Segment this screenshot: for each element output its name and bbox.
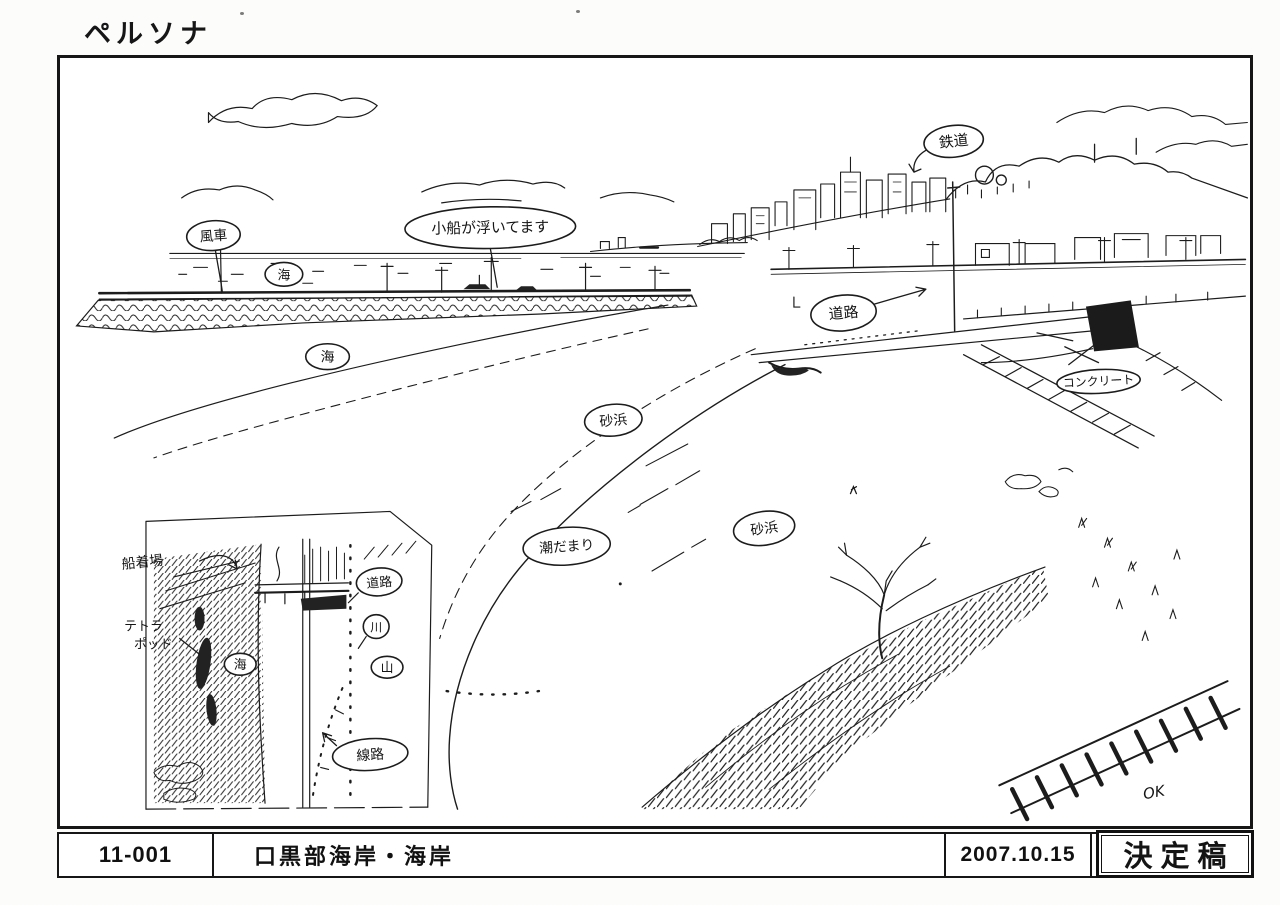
inset-label-road: 道路 — [355, 566, 403, 598]
tracks-arrow — [323, 733, 337, 746]
river-bubble-tail — [358, 636, 366, 648]
clouds-sketch — [182, 93, 674, 202]
cut-number: 11-001 — [59, 834, 214, 876]
date: 2007.10.15 — [946, 834, 1092, 876]
breakwater-sketch — [77, 243, 697, 332]
svg-text:海: 海 — [234, 658, 247, 673]
svg-text:川: 川 — [370, 621, 382, 635]
svg-text:道路: 道路 — [828, 303, 859, 324]
svg-text:鉄道: 鉄道 — [938, 131, 970, 152]
inset-label-tetrapod-1: テトラ — [124, 620, 163, 635]
drawing-frame: 風車 海 小船が浮いてます 鉄道 — [57, 55, 1253, 829]
label-boats-note: 小船が浮いてます — [405, 205, 576, 250]
label-beach-upper: 砂浜 — [583, 402, 643, 439]
label-concrete: コンクリート — [1056, 367, 1140, 395]
label-windmill: 風車 — [186, 219, 242, 252]
label-sea: 海 — [306, 344, 350, 370]
title-block: 11-001 口黒部海岸・海岸 2007.10.15 — [57, 832, 1253, 878]
railway-arrow — [909, 150, 926, 172]
layout-sheet: ペルソナ — [0, 0, 1280, 905]
approval-stamp: 決定稿 — [1096, 830, 1254, 878]
road-arrow — [874, 287, 926, 304]
svg-text:山: 山 — [381, 661, 394, 676]
ok-mark: OK — [1142, 781, 1167, 803]
approval-stamp-text: 決定稿 — [1101, 835, 1249, 873]
label-sea-small: 海 — [265, 262, 303, 286]
tracks-sketch — [999, 681, 1239, 819]
label-railway: 鉄道 — [922, 122, 985, 160]
inset-label-river: 川 — [363, 615, 389, 639]
inset-label-sea: 海 — [224, 653, 256, 675]
coast-sketch: 風車 海 小船が浮いてます 鉄道 — [60, 58, 1250, 826]
svg-text:小船が浮いてます: 小船が浮いてます — [431, 218, 549, 238]
scan-speck — [576, 10, 580, 13]
inset-label-tracks: 線路 — [332, 736, 409, 773]
inset-label-tetrapod-2: ポッド — [134, 637, 173, 652]
svg-text:風車: 風車 — [199, 227, 228, 246]
concrete-ramp-sketch — [964, 333, 1155, 497]
grass-tufts-sketch — [1079, 518, 1180, 640]
label-tide-pool: 潮だまり — [522, 524, 612, 568]
series-title: ペルソナ — [84, 12, 212, 51]
svg-text:海: 海 — [321, 350, 335, 366]
svg-text:海: 海 — [277, 268, 290, 283]
label-road: 道路 — [809, 292, 877, 333]
svg-text:線路: 線路 — [356, 747, 385, 765]
svg-text:道路: 道路 — [366, 574, 393, 592]
inset-label-mountain: 山 — [371, 656, 403, 678]
slope-sketch — [640, 567, 1049, 809]
scene-title: 口黒部海岸・海岸 — [214, 834, 946, 876]
svg-text:砂浜: 砂浜 — [599, 412, 628, 430]
scan-speck — [240, 12, 244, 15]
label-beach-lower: 砂浜 — [731, 507, 797, 549]
